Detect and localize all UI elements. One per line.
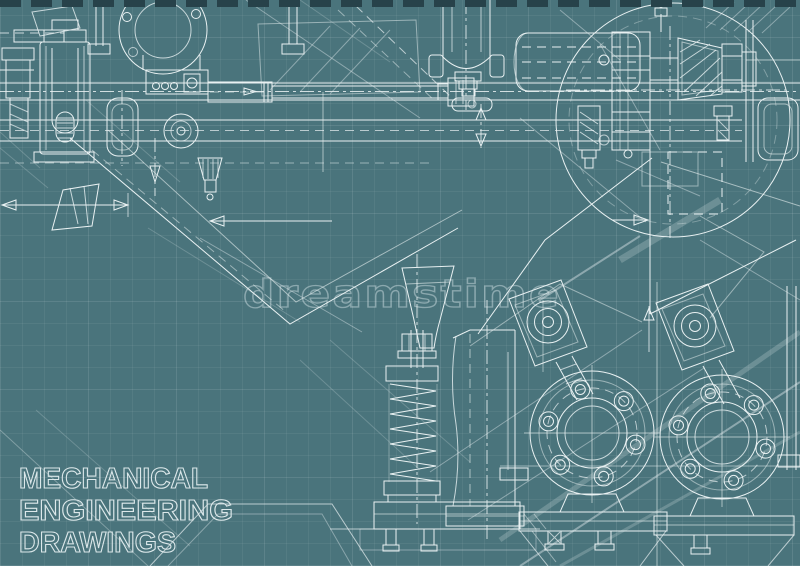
blueprint-canvas: dreamstime MECHANICAL ENGINEERING DRAWIN…	[0, 0, 800, 566]
valve-left	[509, 280, 667, 566]
valve-right	[654, 284, 794, 566]
left-bracket-parts	[0, 0, 110, 138]
watermark-text: dreamstime	[243, 272, 561, 316]
caption-block: MECHANICAL ENGINEERING DRAWINGS	[19, 463, 233, 559]
trunnion-cylinder	[429, 0, 504, 111]
plumb-arrow	[150, 138, 160, 196]
caption-line-2: ENGINEERING	[19, 495, 233, 527]
caption-line-3: DRAWINGS	[19, 527, 176, 559]
top-flange-circle	[119, 0, 208, 94]
small-turnbuckle	[198, 158, 222, 200]
blueprint-linework: dreamstime MECHANICAL ENGINEERING DRAWIN…	[0, 0, 800, 566]
slot-column	[107, 90, 138, 166]
horizontal-drum	[514, 33, 640, 91]
caption-line-1: MECHANICAL	[19, 463, 208, 495]
top-dashed-border	[0, 0, 800, 7]
